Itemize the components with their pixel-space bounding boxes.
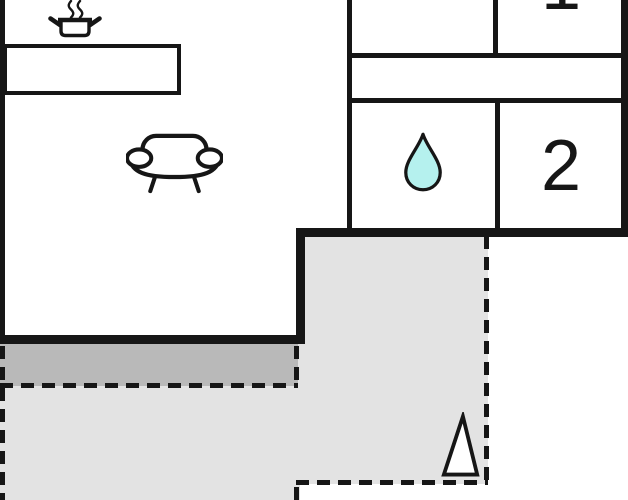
wall-living-bottom (0, 335, 305, 344)
terrace-dashed-border-left (0, 346, 5, 500)
terrace-area-left (0, 386, 300, 500)
sofa-icon (126, 132, 223, 194)
wall-living-right (296, 228, 305, 344)
terrace-dashed-border-step-bottom (0, 383, 298, 388)
room-label-bedroom-2-text: 2 (541, 130, 581, 202)
room-label-bedroom-1: 1 (500, 0, 622, 53)
terrace-dashed-border-right (484, 236, 489, 483)
terrace-dashed-border-bottom-left (294, 487, 299, 500)
wall-right (621, 0, 628, 235)
room-label-bedroom-1-text: 1 (500, 0, 622, 21)
wall-top-room-divider (493, 0, 498, 56)
terrace-dashed-border-bottom (296, 480, 488, 485)
floor-plan: 1 2 (0, 0, 628, 500)
cooking-pot-icon (47, 0, 103, 40)
wall-hallway-top (347, 53, 628, 58)
wall-center-vertical (347, 0, 352, 230)
steam-icon (69, 1, 74, 18)
water-drop-icon (401, 131, 445, 193)
room-label-bedroom-2: 2 (500, 103, 622, 228)
tree-triangle-icon (441, 412, 481, 480)
terrace-step-dark-band (0, 344, 298, 386)
wall-bedrooms-bottom (296, 228, 628, 237)
kitchen-counter (3, 44, 181, 95)
terrace-dashed-border-step-right (294, 346, 299, 384)
